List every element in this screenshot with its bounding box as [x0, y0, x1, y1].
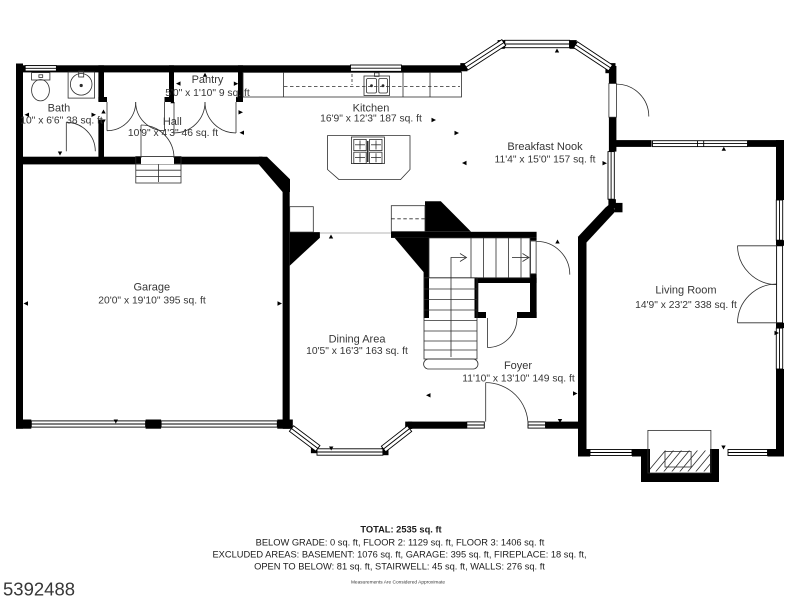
svg-text:Dining Area: Dining Area — [329, 333, 387, 345]
svg-text:TOTAL: 2535 sq. ft: TOTAL: 2535 sq. ft — [360, 525, 441, 535]
svg-text:10'5" x 16'3" 163 sq. ft: 10'5" x 16'3" 163 sq. ft — [306, 346, 408, 357]
svg-text:Breakfast Nook: Breakfast Nook — [507, 141, 583, 153]
svg-text:Bath: Bath — [48, 103, 71, 115]
svg-text:Hall: Hall — [163, 116, 182, 128]
svg-text:11'4" x 15'0" 157 sq. ft: 11'4" x 15'0" 157 sq. ft — [495, 155, 596, 166]
svg-text:5'0" x 1'10" 9 sq. ft: 5'0" x 1'10" 9 sq. ft — [165, 88, 250, 99]
svg-text:Measurements Are Considered Ap: Measurements Are Considered Approximate — [351, 579, 445, 585]
svg-text:14'9" x 23'2" 338 sq. ft: 14'9" x 23'2" 338 sq. ft — [635, 300, 737, 311]
svg-text:Living Room: Living Room — [655, 285, 716, 297]
svg-text:10" x 6'6" 38 sq. ft: 10" x 6'6" 38 sq. ft — [20, 116, 103, 127]
svg-text:5392488: 5392488 — [3, 579, 75, 600]
svg-text:11'10" x 13'10" 149 sq. ft: 11'10" x 13'10" 149 sq. ft — [462, 374, 575, 385]
svg-text:Pantry: Pantry — [192, 74, 224, 86]
svg-text:Garage: Garage — [133, 282, 170, 294]
svg-text:20'0" x 19'10" 395 sq. ft: 20'0" x 19'10" 395 sq. ft — [98, 296, 206, 307]
svg-text:10'9" x 4'3" 46 sq. ft: 10'9" x 4'3" 46 sq. ft — [128, 128, 218, 139]
svg-text:EXCLUDED AREAS: BASEMENT: 1076: EXCLUDED AREAS: BASEMENT: 1076 sq. ft, G… — [212, 550, 586, 560]
svg-text:OPEN TO BELOW: 81 sq. ft, STAI: OPEN TO BELOW: 81 sq. ft, STAIRWELL: 45 … — [254, 562, 545, 572]
svg-text:BELOW GRADE: 0 sq. ft, FLOOR 2: BELOW GRADE: 0 sq. ft, FLOOR 2: 1129 sq.… — [256, 537, 545, 547]
svg-text:16'9" x 12'3" 187 sq. ft: 16'9" x 12'3" 187 sq. ft — [320, 113, 422, 124]
svg-text:Foyer: Foyer — [504, 360, 532, 372]
